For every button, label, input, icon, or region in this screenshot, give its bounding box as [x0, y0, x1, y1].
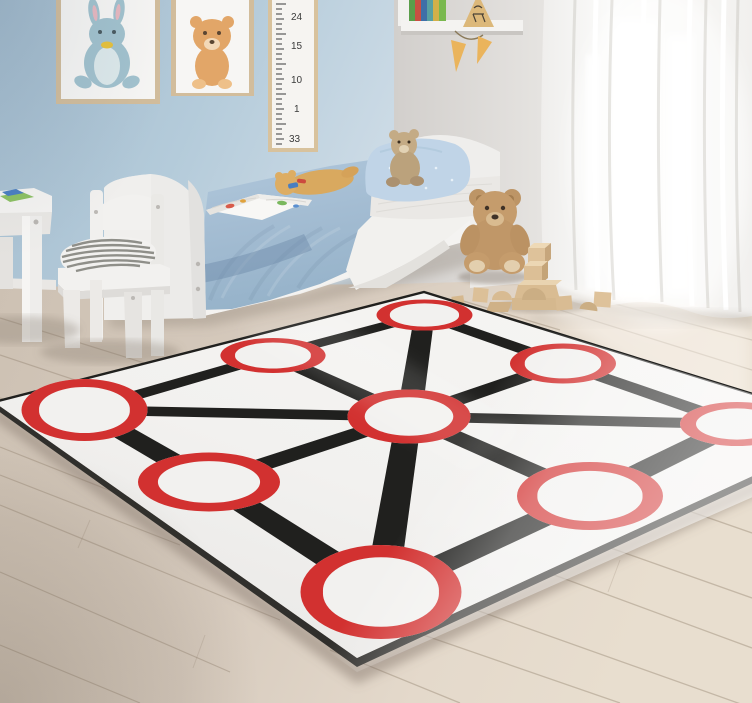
- svg-text:33: 33: [289, 134, 301, 145]
- svg-text:10: 10: [291, 75, 303, 86]
- svg-text:24: 24: [291, 12, 303, 23]
- svg-text:15: 15: [291, 41, 303, 52]
- svg-text:1: 1: [294, 104, 300, 115]
